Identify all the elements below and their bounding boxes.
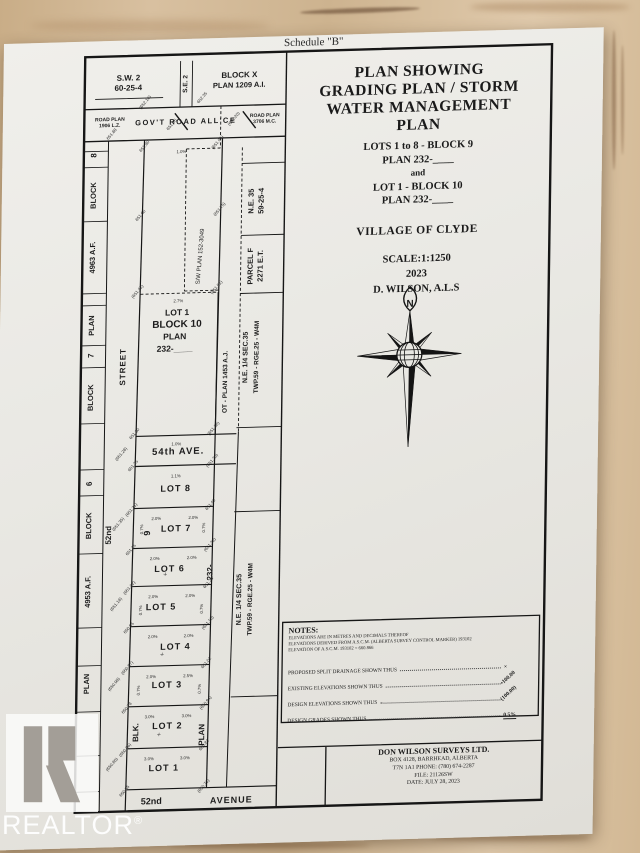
legend-symbol-cell: •100.00 — [504, 679, 534, 686]
plat-label: LOT 6 — [154, 563, 185, 574]
registered-symbol: ® — [134, 815, 143, 827]
plat-elevation-label: (651.30) — [205, 452, 220, 468]
plat-elevation-label: (651.21) — [124, 501, 139, 517]
plat-elevation-label: 3.0% — [145, 714, 155, 719]
plat-label: LOT 1 — [148, 762, 179, 773]
plat-label: 59-25-4 — [256, 187, 265, 214]
plat-label: LOT 4 — [160, 641, 191, 652]
plat-elevation-label: 3.0% — [182, 713, 192, 718]
plat-elevation-label: 651.25 — [127, 458, 140, 472]
realtor-watermark-text: REALTOR® — [2, 810, 142, 841]
plat-label: 60-25-4 — [114, 83, 142, 93]
legend-symbol: •100.00 — [500, 670, 517, 686]
plat-elevation-label: 652.35 — [196, 90, 209, 104]
wood-grain — [470, 2, 630, 12]
plat-label: PLAN — [163, 331, 186, 342]
municipality-label: VILLAGE OF CLYDE — [287, 220, 547, 239]
plat-label: LOT 5 — [146, 601, 177, 612]
surveyor-contact-lines: BOX 4128, BARRHEAD, ALBERTAT7N 1A1 PHONE… — [327, 753, 539, 790]
plat-label: 4953 A.F. — [83, 576, 92, 608]
plat-elevation-label: 0.7% — [139, 524, 144, 534]
plat-label: N.E. 35 — [246, 189, 255, 214]
plat-elevation-label: (651.28) — [114, 446, 129, 462]
plat-elevation-label: (650.87) — [120, 660, 135, 676]
plat-elevation-label: (651.32) — [203, 536, 218, 552]
plat-elevation-label: 651.15 — [124, 543, 137, 557]
legend-symbol-cell: (100.00) — [503, 695, 533, 702]
plat-elevation-label: (650.80) — [105, 756, 120, 772]
plat-label: 232-____ — [157, 343, 193, 354]
plat-label: PARCEL F — [245, 247, 255, 284]
plat-label: TWP.59 - RGE.25 - W4M — [247, 563, 255, 636]
scale-block: SCALE:1:12502023D. WILSON, A.L.S — [286, 247, 547, 299]
legend-symbol-cell: 0.5% — [503, 711, 533, 718]
plat-label: PLAN — [87, 315, 96, 336]
title-block: PLAN SHOWINGGRADING PLAN / STORMWATER MA… — [286, 59, 549, 300]
surveyor-info-block: DON WILSON SURVEYS LTD. BOX 4128, BARRHE… — [327, 743, 539, 790]
compass-north-label: N — [406, 299, 413, 310]
plat-elevation-label: (651.35) — [111, 516, 126, 532]
legend-symbol: × — [504, 664, 507, 670]
plat-elevation-label: 2.0% — [185, 593, 195, 598]
wood-grain — [300, 6, 420, 15]
plat-label: S/W PLAN 152-3049 — [196, 228, 207, 285]
plat-label: N.E. 1/4 SEC.35 — [242, 331, 250, 383]
legend-symbol: (100.00) — [499, 684, 517, 702]
plan-subtitle: LOTS 1 to 8 - BLOCK 9PLAN 232-____andLOT… — [287, 136, 548, 211]
wood-grain — [621, 45, 624, 155]
plat-label: 6 — [85, 481, 94, 486]
plat-elevation-label: 2.0% — [148, 594, 158, 599]
plat-elevation-label: 651.60 — [134, 208, 147, 222]
plat-label: BLOCK — [89, 182, 98, 210]
plat-elevation-label: 651.02 — [200, 655, 213, 669]
plat-label: TWP.59 - RGE.25 - W4M — [253, 321, 261, 394]
plat-elevation-label: (651.10) — [200, 614, 215, 630]
sw-plan-dashed-parcel — [140, 106, 221, 294]
plat-label: N.E. 1/4 SEC.35 — [236, 574, 244, 626]
plat-elevation-label: 1.0% — [176, 149, 186, 154]
realtor-watermark-box — [6, 714, 98, 812]
plat-label: LOT 3 — [152, 679, 183, 690]
plat-elevation-label: 651.40 — [204, 497, 217, 511]
plat-elevation-label: (651.18) — [109, 596, 124, 612]
plat-label: 54th AVE. — [152, 446, 204, 458]
plat-elevation-label: 3.0% — [144, 756, 154, 761]
legend-symbol: 0.5% — [503, 712, 516, 719]
plat-label: BLOCK 10 — [152, 319, 202, 331]
plat-label: LOT 1 — [165, 307, 189, 318]
plat-elevation-label: 2.0% — [150, 556, 160, 561]
plat-label: LOT 2 — [152, 720, 183, 731]
plat-elevation-label: (650.98) — [107, 676, 122, 692]
plat-elevation-label: 2.0% — [146, 674, 156, 679]
plat-elevation-label: 2.0% — [188, 515, 198, 520]
lane-dashed-line — [238, 147, 242, 431]
plat-elevation-label: 0.7% — [136, 685, 141, 695]
plat-elevation-label: 650.95 — [122, 621, 135, 635]
wood-grain — [612, 30, 616, 170]
left-block-line — [99, 141, 108, 812]
plat-label: PLAN — [82, 674, 91, 695]
photo-of-survey-plan: Schedule "B" — [0, 0, 640, 853]
plat-elevation-label: 650.55 — [118, 784, 131, 798]
plat-elevation-label: 0.7% — [199, 604, 204, 614]
plat-elevation-label: 0.7% — [138, 605, 143, 615]
plat-label: GOV'T ROAD ALL'CE — [135, 116, 236, 128]
plat-elevation-label: 0.7% — [201, 522, 206, 532]
wood-grain — [30, 20, 270, 32]
plat-label: 2271 E.T. — [255, 250, 264, 282]
plat-label: LOT 8 — [160, 483, 191, 494]
plat-elevation-label: (651.02) — [122, 579, 137, 595]
plat-elevation-label: 2.0% — [187, 555, 197, 560]
plat-elevation-label: 650.78 — [120, 701, 133, 715]
plan-title: PLAN SHOWINGGRADING PLAN / STORMWATER MA… — [288, 59, 549, 138]
plat-elevation-label: 0.7% — [197, 684, 202, 694]
plat-elevation-label: (651.42) — [130, 283, 145, 299]
plat-elevation-label: 651.30 — [128, 426, 141, 440]
plat-elevation-label: 1.1% — [171, 473, 181, 478]
notes-block: NOTES: ELEVATIONS ARE IN METRES AND DECI… — [287, 619, 534, 724]
legend-symbol-cell: × — [504, 663, 534, 670]
plat-label: BLOCK — [86, 384, 95, 412]
plat-label: BLK. — [131, 723, 140, 742]
plat-elevation-label: × — [156, 731, 163, 738]
plat-elevation-label: 2.5% — [183, 673, 193, 678]
plat-label: S.W. 2 — [117, 73, 141, 83]
plat-label: S.E. 2 — [182, 75, 189, 93]
plat-label: 4963 A.F. — [88, 242, 97, 274]
plat-label: 8 — [89, 153, 98, 158]
plat-elevation-label: × — [159, 651, 166, 658]
plat-label: 3706 M.C. — [253, 118, 277, 125]
plat-label: BLOCK — [84, 512, 93, 540]
plat-label: 7 — [87, 353, 96, 358]
plat-label: AVENUE — [210, 794, 253, 805]
plat-label: PLAN 1209 A.I. — [213, 80, 266, 90]
plat-elevation-label: (651.75) — [212, 201, 227, 217]
plat-elevation-label: 2.0% — [184, 633, 194, 638]
plat-elevation-label: 2.0% — [151, 516, 161, 521]
block10-east-line — [215, 292, 218, 434]
plat-elevation-label: 2.7% — [173, 298, 183, 303]
plat-label: BLOCK X — [221, 70, 258, 80]
realtor-r-logo-icon — [6, 714, 98, 812]
plat-elevation-label: (650.94) — [198, 694, 213, 710]
plat-elevation-label: (650.71) — [196, 777, 211, 793]
plat-label: LOT 7 — [161, 523, 192, 534]
plat-elevation-label: 3.0% — [180, 755, 190, 760]
street-east-line — [125, 140, 144, 811]
plat-label: 1906 L.Z. — [99, 123, 121, 130]
plat-elevation-label: (651.52) — [209, 279, 224, 295]
plat-label: OT - PLAN 1453 A.J. — [222, 351, 230, 414]
plat-label: STREET — [118, 348, 128, 386]
plat-label: 52nd — [141, 796, 162, 807]
plat-elevation-label: 2.0% — [148, 634, 158, 639]
plat-elevation-label: 1.0% — [171, 441, 181, 446]
realtor-wordmark: REALTOR — [2, 810, 134, 840]
plat-elevation-label: (650.66) — [118, 742, 133, 758]
notes-legend: PROPOSED SPLIT DRAINAGE SHOWN THUS×EXIST… — [287, 653, 534, 724]
